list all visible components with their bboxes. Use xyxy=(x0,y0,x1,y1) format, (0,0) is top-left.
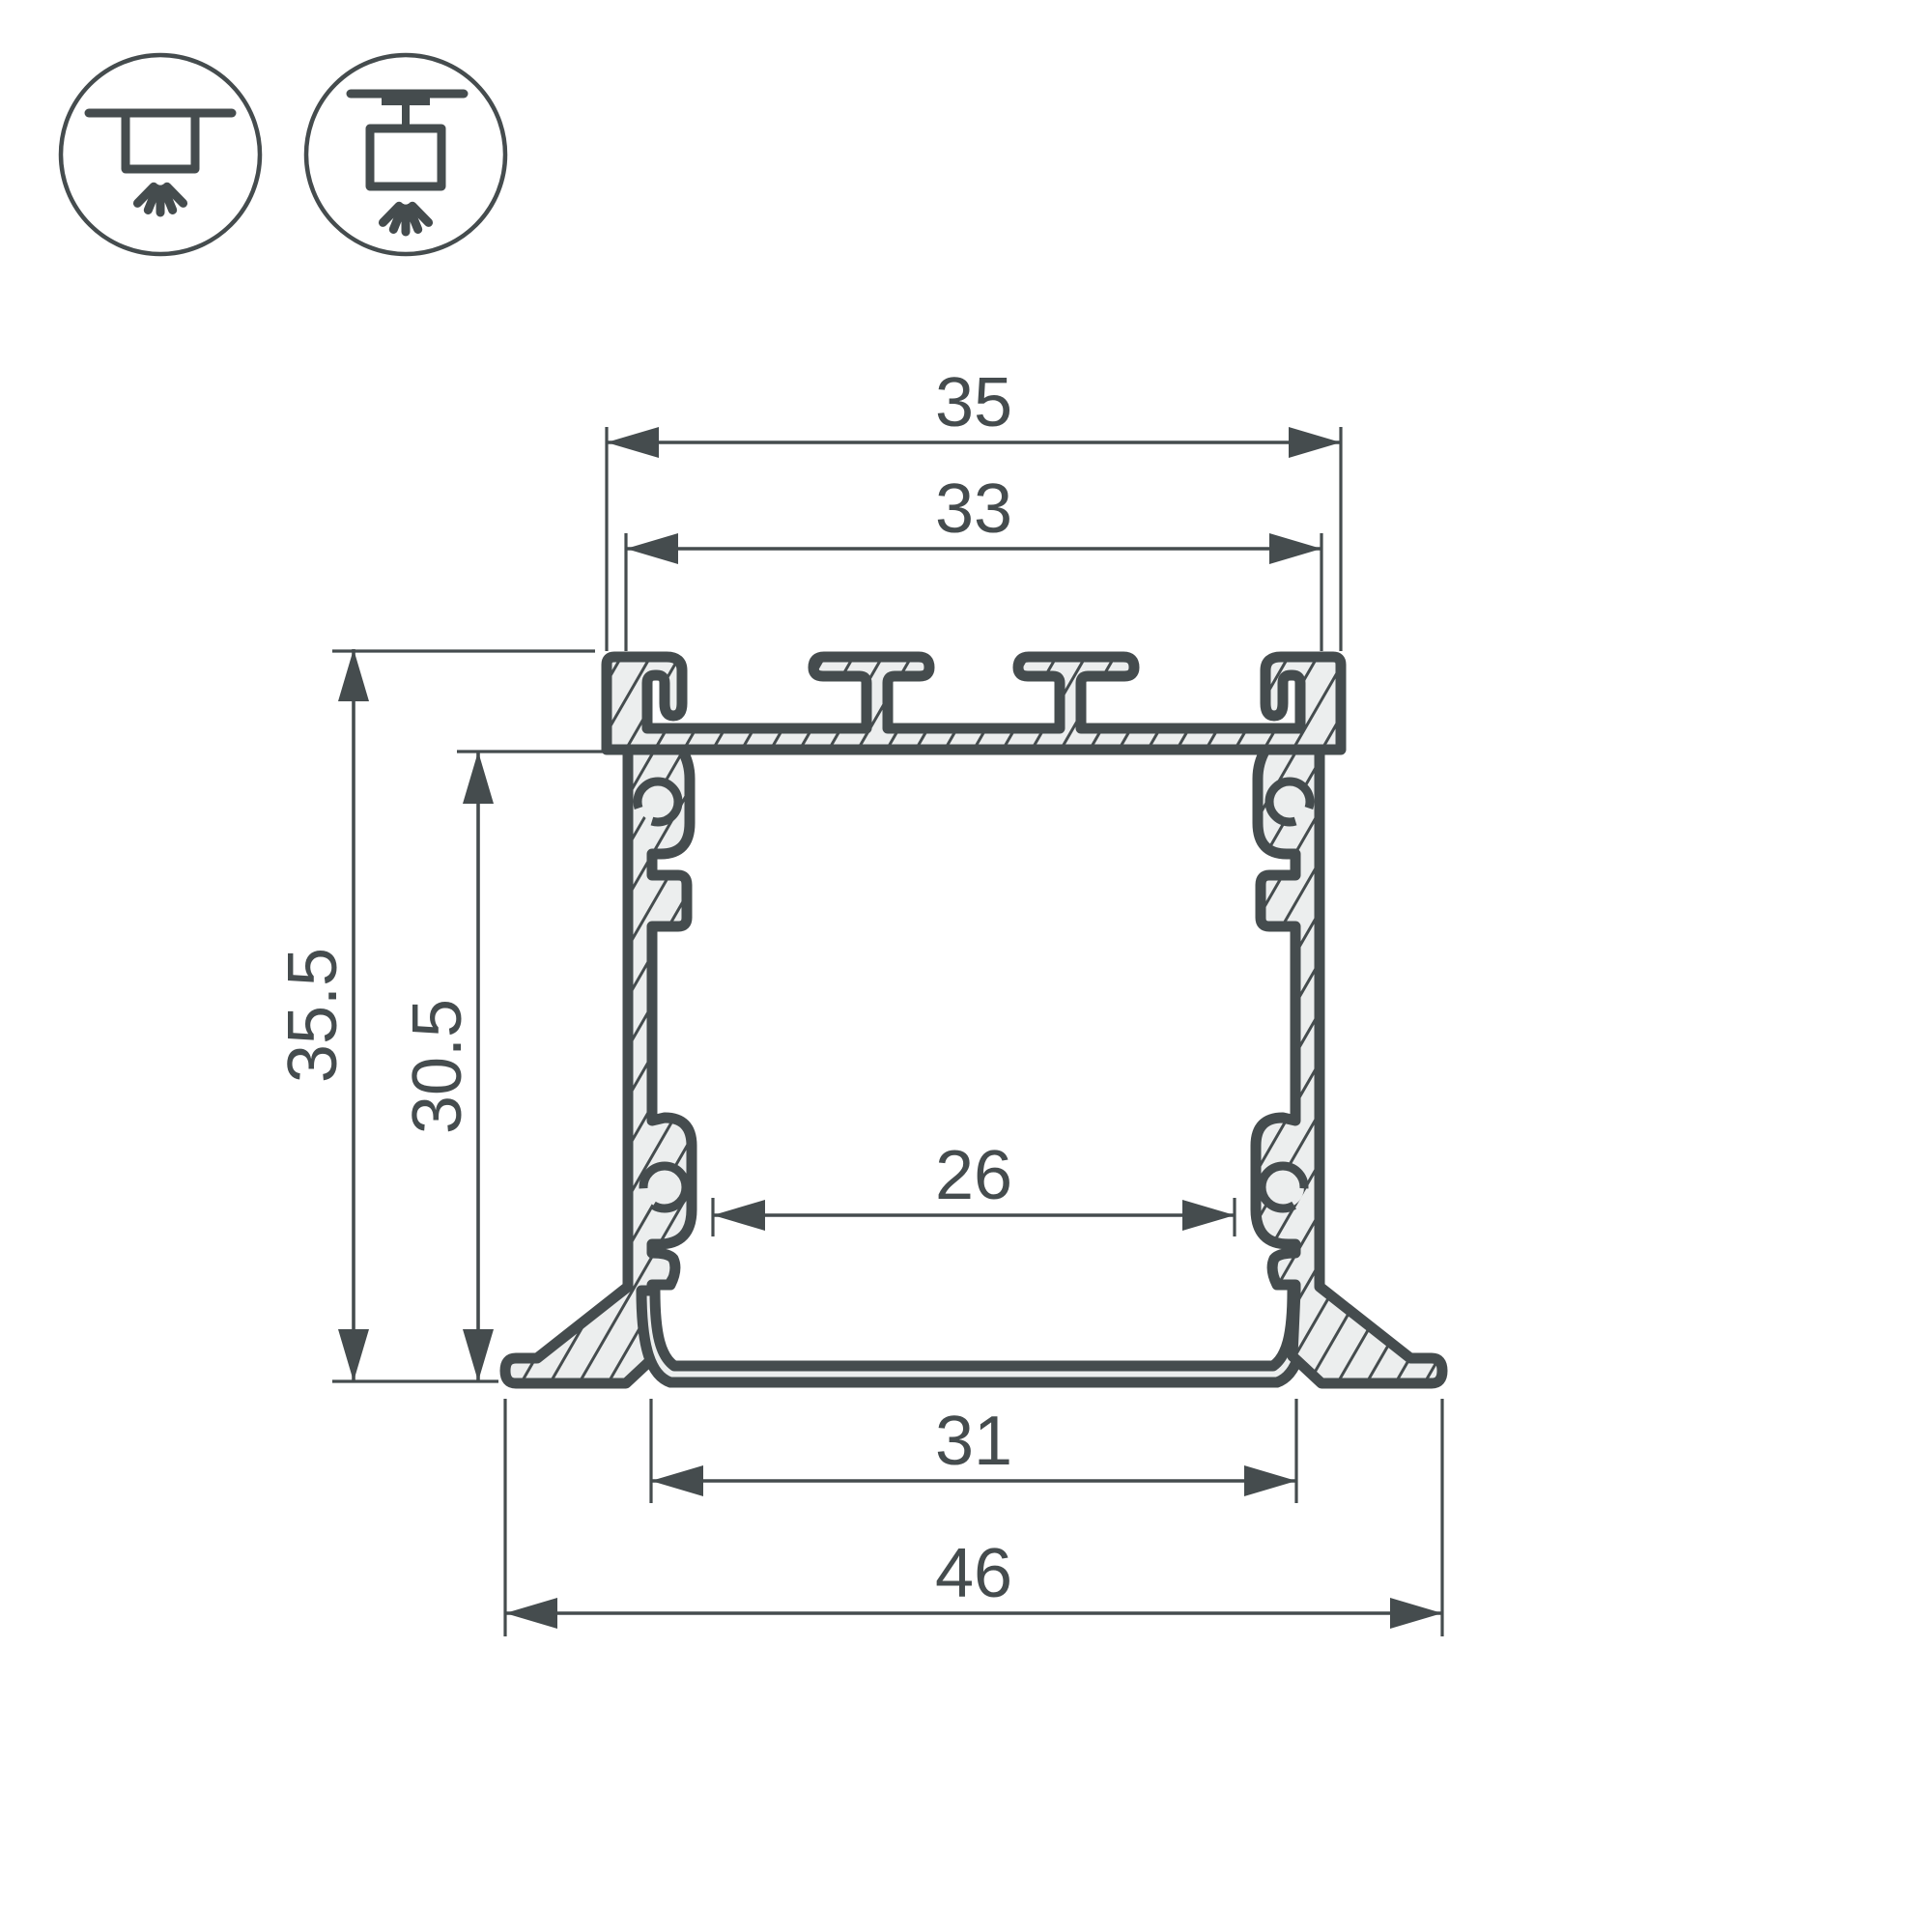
profile-cross-section xyxy=(505,657,1442,1383)
top-rail xyxy=(607,657,1341,750)
upper-screw-port xyxy=(638,781,678,822)
recessed-mount-icon xyxy=(61,55,260,254)
profile-drawing: 35 33 35.5 30.5 xyxy=(0,0,1932,1932)
dim-label-inner-bottom-width: 26 xyxy=(935,1137,1012,1214)
dim-inner-height: 30.5 xyxy=(399,752,645,1381)
dim-label-top-width: 35 xyxy=(935,364,1012,441)
upper-screw-port xyxy=(1269,781,1310,822)
dim-bottom-recess-width: 31 xyxy=(651,1399,1296,1503)
side-wall-and-foot xyxy=(1256,750,1442,1383)
dim-label-overall-width: 46 xyxy=(935,1535,1012,1612)
dim-inner-top-width: 33 xyxy=(626,470,1321,651)
bottom-sheet xyxy=(641,1291,1306,1382)
dim-label-overall-height: 35.5 xyxy=(274,948,352,1083)
side-wall-and-foot xyxy=(505,750,692,1383)
dim-label-bottom-recess-width: 31 xyxy=(935,1403,1012,1480)
dim-label-inner-top-width: 33 xyxy=(935,470,1012,548)
light-rays xyxy=(137,186,183,213)
lower-screw-port xyxy=(1262,1166,1304,1208)
recessed-box xyxy=(126,113,195,169)
mounting-icons xyxy=(61,55,505,254)
dim-label-inner-height: 30.5 xyxy=(399,999,476,1134)
lower-screw-port xyxy=(643,1166,686,1208)
icon-circle xyxy=(61,55,260,254)
dimensions: 35 33 35.5 30.5 xyxy=(274,364,1442,1636)
profile-side xyxy=(505,750,692,1383)
luminaire-box xyxy=(370,128,441,186)
profile-side-right xyxy=(1256,750,1442,1383)
suspended-mount-icon xyxy=(306,55,505,254)
light-rays xyxy=(383,206,428,232)
drawing-page: 35 33 35.5 30.5 xyxy=(0,0,1932,1932)
dim-inner-bottom-width: 26 xyxy=(713,1137,1235,1236)
